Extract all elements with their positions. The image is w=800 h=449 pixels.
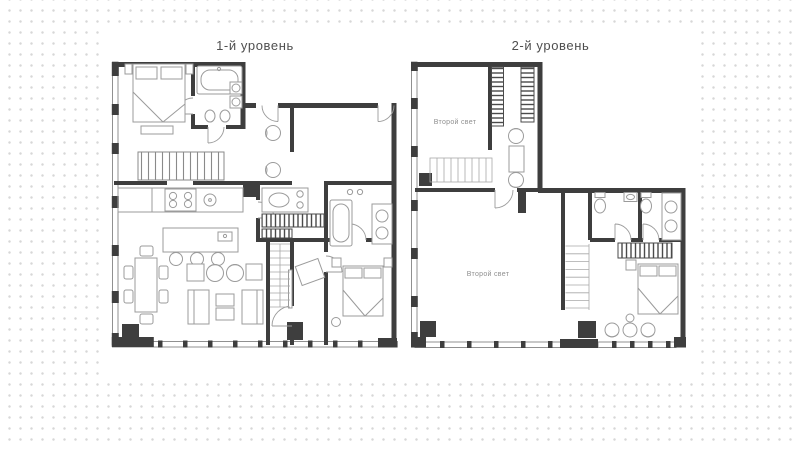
bidet (220, 110, 230, 122)
column (122, 324, 139, 337)
toilet-tank (641, 193, 651, 198)
bathroom-2 (330, 189, 392, 246)
pouf (332, 318, 341, 327)
sofa (188, 290, 209, 324)
coffee-table (216, 308, 234, 320)
sink (624, 193, 637, 202)
wardrobe (138, 152, 224, 180)
column (287, 322, 303, 340)
chair (140, 246, 153, 256)
chair (159, 290, 168, 303)
table (509, 146, 524, 172)
chair (266, 163, 281, 178)
chair (266, 126, 281, 141)
void-room-lower: Второй свет (467, 270, 510, 278)
floorplan-level-1 (108, 56, 404, 354)
sofa (242, 290, 263, 324)
bedroom-level-2 (605, 243, 678, 337)
wardrobe (492, 67, 504, 126)
bathroom-1 (197, 66, 242, 122)
dining-area (124, 246, 168, 324)
bench (141, 126, 173, 134)
column (578, 321, 596, 338)
nightstand (186, 64, 193, 74)
chair (140, 314, 153, 324)
pillow (364, 268, 381, 278)
kitchen-counter (118, 188, 243, 212)
pouf (626, 314, 634, 322)
dining-table (135, 258, 157, 312)
bar-stool (212, 253, 225, 266)
void-room-upper: Второй свет (430, 118, 492, 182)
wardrobe-nook (492, 67, 535, 188)
wardrobe (262, 214, 324, 227)
toilet (641, 199, 652, 213)
void-label-lower: Второй свет (467, 270, 510, 278)
wardrobe (521, 67, 534, 122)
chair (124, 290, 133, 303)
wardrobe (618, 243, 672, 258)
chair (124, 266, 133, 279)
entry-hall (266, 126, 281, 178)
chair (159, 266, 168, 279)
side-table (187, 264, 204, 281)
floorplan-level-2: Второй свет Второй свет (406, 56, 695, 354)
double-sink (662, 193, 681, 240)
living-room (187, 258, 325, 324)
coffee-table (216, 294, 234, 306)
bathroom-level-2 (641, 193, 682, 241)
pillow (640, 266, 657, 276)
stove (165, 189, 196, 211)
level-2-title: 2-й уровень (408, 38, 693, 54)
bar-stool (170, 253, 183, 266)
pillow (345, 268, 362, 278)
floorplan-canvas: 1-й уровень 2-й уровень (0, 0, 800, 449)
kitchen (118, 188, 243, 266)
chair (623, 323, 637, 337)
nightstand (125, 64, 132, 74)
wardrobe (262, 229, 292, 238)
bedroom-2 (332, 258, 393, 327)
pillow (161, 67, 182, 79)
side-table (246, 264, 262, 280)
column (420, 321, 436, 337)
level-1-title: 1-й уровень (108, 38, 402, 54)
wc-room (595, 193, 638, 214)
void-label-upper: Второй свет (434, 118, 477, 126)
nightstand (626, 260, 636, 270)
rug (295, 258, 324, 285)
laundry-room (262, 188, 324, 238)
nightstand (332, 258, 341, 267)
tv-unit (289, 270, 293, 308)
stairs-level-2 (566, 244, 590, 310)
stairs-level-1 (270, 244, 290, 307)
kitchen-sink (204, 194, 216, 206)
pillow (136, 67, 157, 79)
pillow (659, 266, 676, 276)
toilet-tank (595, 193, 605, 198)
toilet (205, 110, 215, 122)
toilet (595, 199, 606, 213)
stairs-upper (430, 158, 492, 182)
nightstand (384, 258, 392, 267)
